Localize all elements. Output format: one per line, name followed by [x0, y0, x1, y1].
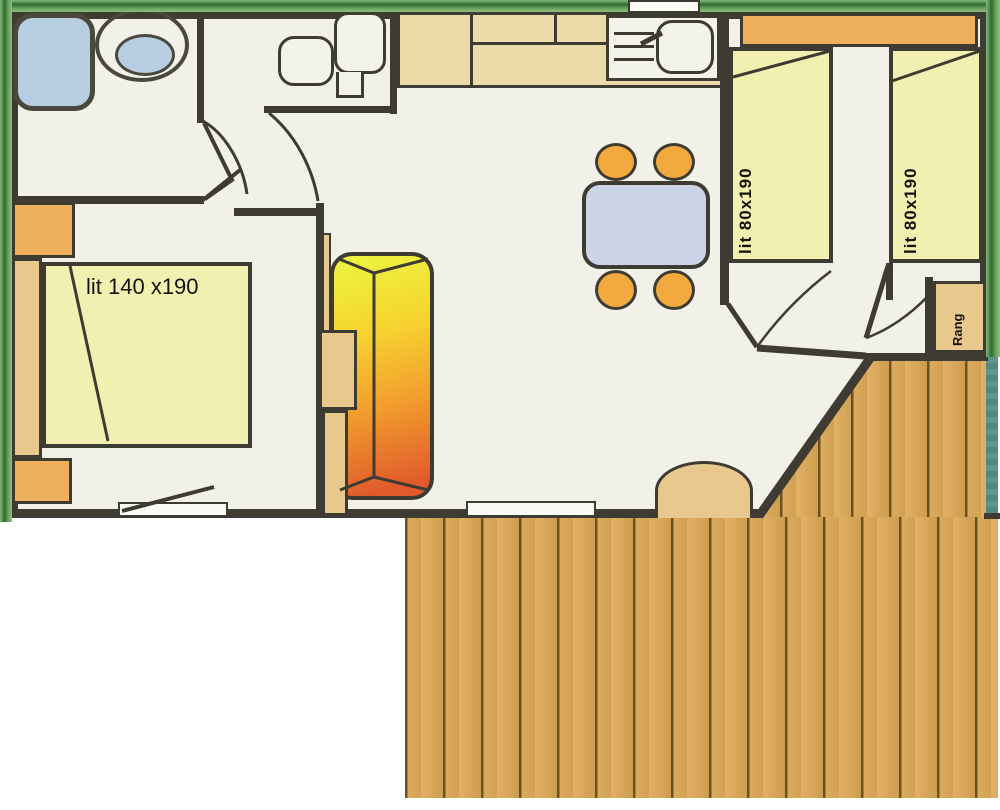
counter-divider-3 — [554, 12, 557, 42]
dresser-bottom — [12, 458, 72, 504]
wall-bathroom-right — [197, 12, 204, 123]
counter-divider-2 — [470, 42, 608, 45]
dining-chair — [653, 143, 695, 181]
floor-plan: lit 80x190 lit 80x190 Rang lit 140 x190 — [0, 0, 1000, 810]
toilet-base — [336, 72, 364, 98]
deck-terrace — [405, 517, 998, 798]
living-bay-window — [466, 501, 596, 517]
headboard-shelf — [740, 13, 978, 47]
shell-border-right — [986, 0, 1000, 357]
single-bed-right-label: lit 80x190 — [901, 142, 921, 254]
dining-chair — [653, 270, 695, 310]
toilet-cistern — [334, 12, 386, 74]
deck-edge-mark — [984, 513, 1000, 519]
washbasin — [115, 34, 175, 76]
toilet-bowl — [278, 36, 334, 86]
kitchen-sink — [656, 20, 714, 74]
dining-chair — [595, 143, 637, 181]
wall-wc-bottom — [264, 106, 397, 113]
double-bed-label: lit 140 x190 — [86, 274, 199, 300]
wall-wc-right — [390, 12, 397, 114]
single-bed-left-label: lit 80x190 — [736, 142, 756, 254]
side-shelf — [322, 233, 331, 332]
shell-border-left — [0, 0, 12, 522]
wall-bedroom-top — [234, 208, 320, 216]
shower-tray — [13, 13, 95, 111]
dining-table — [582, 181, 710, 269]
hedge-strip — [986, 357, 998, 515]
bedroom-window — [118, 502, 228, 517]
drainer-line — [614, 45, 654, 48]
wall-bedroom-right-stub — [886, 263, 893, 300]
shell-border-top — [0, 0, 1000, 12]
entrance-step — [655, 461, 753, 518]
wall-deck-top — [866, 353, 988, 361]
side-cabinet-low — [322, 410, 348, 516]
dining-chair — [595, 270, 637, 310]
counter-divider-1 — [470, 12, 473, 88]
wardrobe-top — [12, 202, 75, 258]
storage-label: Rang — [950, 288, 965, 346]
drainer-line — [614, 58, 654, 61]
wall-storage-left — [925, 277, 933, 357]
wardrobe-side — [12, 258, 42, 458]
kitchen-window — [628, 0, 700, 13]
side-cabinet — [319, 330, 357, 410]
drainer-line — [614, 32, 654, 35]
